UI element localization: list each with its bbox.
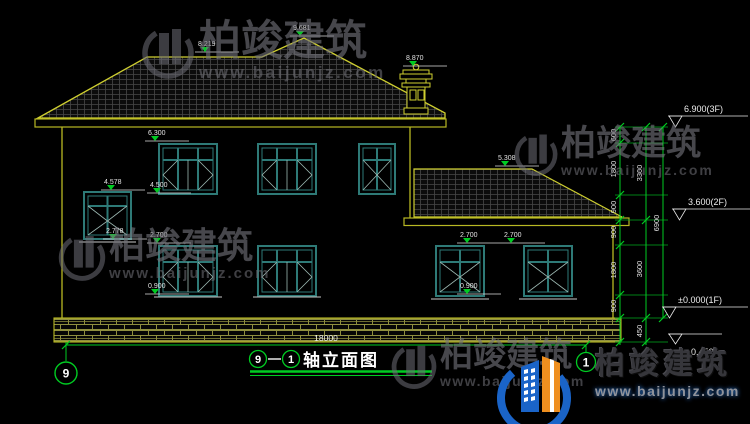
- level-3f-value: 6.900(3F): [684, 104, 723, 114]
- level-1f-value: ±0.000(1F): [678, 295, 722, 305]
- dim-1800-upper: 1800: [609, 161, 618, 178]
- annex-eave-fascia: [404, 218, 629, 226]
- main-hip-roof: [38, 38, 445, 118]
- window-1f-1: [159, 246, 217, 296]
- axis-bubble-left-label: 9: [63, 367, 70, 381]
- dim-6900: 6900: [652, 215, 661, 232]
- level-stair-window-head-value: 4.578: [104, 179, 122, 186]
- dim-1800-lower: 1800: [609, 262, 618, 279]
- annex-roof: [404, 169, 629, 226]
- level-annex-sill-value: 0.900: [460, 283, 478, 290]
- level-annex-head-2-value: 2.700: [504, 232, 522, 239]
- dim-900-c: 900: [609, 300, 618, 313]
- chain-mid-values: 3300 3600 450: [635, 165, 644, 338]
- dim-3300: 3300: [635, 165, 644, 182]
- elevation-drawing-canvas: 8.219 9.681 8.870 6.300 4.578 4.500: [0, 0, 750, 424]
- title-axis-end: 1: [288, 354, 294, 366]
- level-ridge-low-value: 8.219: [198, 41, 216, 48]
- right-extension-lines: [615, 127, 668, 342]
- level-window1f-head: 2.700: [147, 232, 191, 243]
- level-window2f-head-value: 6.300: [148, 130, 166, 137]
- dim-600: 600: [609, 129, 618, 142]
- window-1f-2: [258, 246, 316, 296]
- window-2f-1: [159, 144, 217, 194]
- level-annex-head-1: 2.700: [457, 232, 501, 243]
- level-window2f-sill: 4.500: [147, 182, 191, 193]
- dimension-chains: 600 1800 900 900 1800 900 3300 3600 450 …: [609, 123, 667, 346]
- axis-bubble-left: 9: [55, 362, 77, 384]
- level-window1f-sill-value: 0.900: [148, 283, 166, 290]
- overall-width-value: 18000: [314, 333, 338, 343]
- level-annex-ridge-value: 5.308: [498, 155, 516, 162]
- level-3f: 6.900(3F): [668, 104, 748, 127]
- level-ridge-low: 8.219: [195, 41, 239, 52]
- level-2f: 3.600(2F): [672, 197, 750, 220]
- axis-bubble-right-label: 1: [583, 356, 590, 370]
- drawing-title: 9 1 轴立面图: [250, 350, 433, 376]
- level-chimney-top-value: 8.870: [406, 55, 424, 62]
- floor-level-symbols: 6.900(3F) 3.600(2F) ±0.000(1F) -0.450: [662, 104, 750, 357]
- level-ground-value: -0.450: [688, 347, 714, 357]
- level-stair-window-head: 4.578: [101, 179, 145, 190]
- main-eave-fascia: [35, 119, 446, 127]
- dim-3600: 3600: [635, 261, 644, 278]
- level-1f: ±0.000(1F): [662, 295, 748, 318]
- level-annex-head-2: 2.700: [501, 232, 545, 243]
- level-chimney-top: 8.870: [403, 55, 447, 66]
- level-stair-window-sill-value: 2.778: [106, 228, 124, 235]
- level-annex-ridge: 5.308: [495, 155, 539, 166]
- dimension-ticks: [616, 123, 667, 346]
- level-window1f-head-value: 2.700: [150, 232, 168, 239]
- level-window2f-sill-value: 4.500: [150, 182, 168, 189]
- level-window2f-head: 6.300: [145, 130, 189, 141]
- level-ridge-peak: 9.681: [290, 25, 334, 36]
- cad-linework: 8.219 9.681 8.870 6.300 4.578 4.500: [0, 0, 750, 424]
- level-annex-head-1-value: 2.700: [460, 232, 478, 239]
- window-2f-3: [359, 144, 395, 194]
- axis-bubble-right: 1: [577, 353, 596, 372]
- level-ridge-peak-value: 9.681: [293, 25, 311, 32]
- window-annex-2: [524, 246, 572, 296]
- window-2f-2: [258, 144, 316, 194]
- title-text: 轴立面图: [303, 350, 379, 370]
- dim-900-a: 900: [609, 201, 618, 214]
- level-2f-value: 3.600(2F): [688, 197, 727, 207]
- dim-900-b: 900: [609, 226, 618, 239]
- title-axis-start: 9: [255, 354, 261, 366]
- level-ground: -0.450: [668, 334, 722, 357]
- dim-450: 450: [635, 325, 644, 338]
